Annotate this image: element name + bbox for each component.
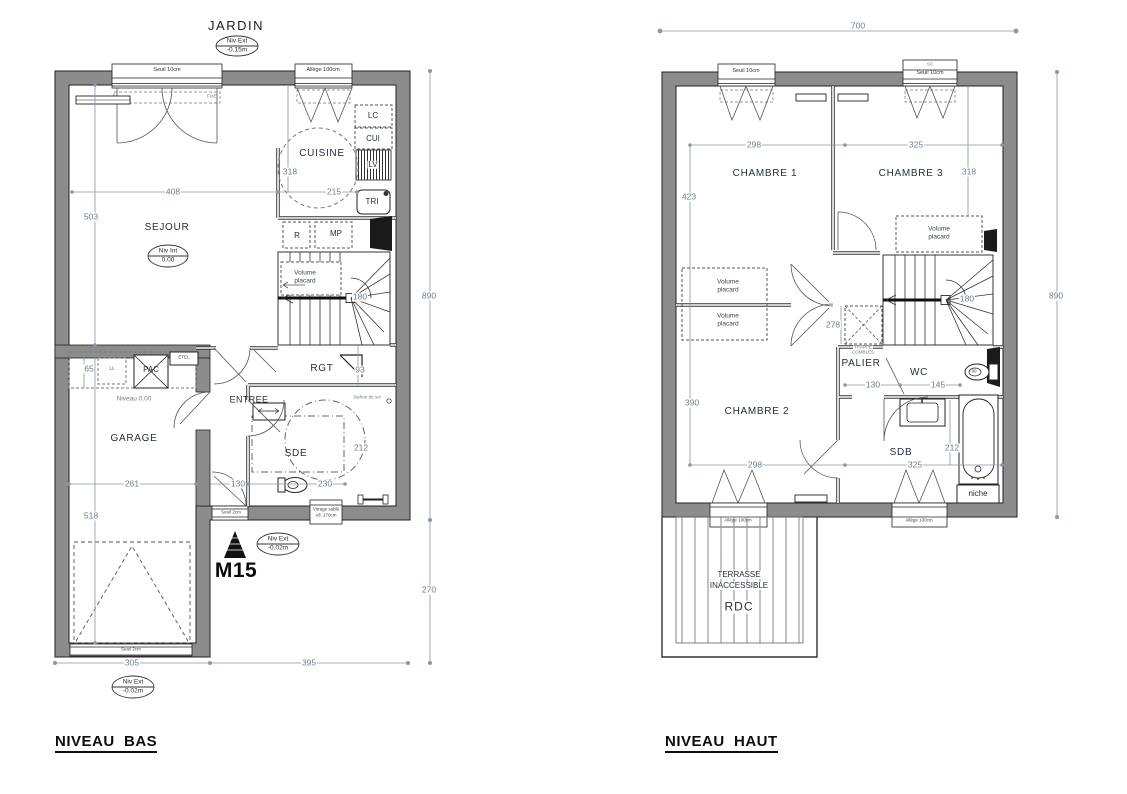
volume-placard-bas-l2: placard: [294, 279, 315, 286]
window-label-allege100: Allège 100cm: [306, 68, 339, 74]
jardin-label: JARDIN: [208, 19, 264, 33]
volume-placard-h3-l2: placard: [927, 235, 950, 242]
partitions-niveau-haut: [676, 86, 1003, 503]
level-ext-bot-label: Niv Ext: [123, 680, 144, 687]
room-rgt: RGT: [310, 364, 333, 375]
fixture-cui: CUI: [366, 135, 380, 143]
room-palier: PALIER: [841, 359, 880, 370]
level-int-value: 0.00: [162, 258, 175, 265]
fixture-r: R: [294, 232, 300, 240]
vitrage-label-l1: Vitrage sablé: [312, 508, 340, 513]
fixture-lc: LC: [368, 112, 378, 120]
volume-placard-h1-l2: placard: [716, 288, 739, 295]
dimensions-niveau-haut: [658, 29, 1059, 519]
plan-title-niveau-haut: NIVEAU HAUT: [665, 733, 778, 753]
window-label-sc: SC: [927, 63, 933, 68]
dim-180-haut: 180: [959, 295, 975, 304]
dim-318-haut: 318: [961, 168, 977, 177]
level-int-label: Niv Int: [159, 249, 177, 256]
dim-503: 503: [83, 213, 99, 222]
room-sdb: SDB: [890, 448, 913, 459]
vitrage-label-l2: All. 170cm: [314, 514, 337, 519]
dim-93: 93: [354, 366, 365, 375]
dim-423: 423: [681, 193, 697, 202]
dim-230: 230: [317, 480, 333, 489]
terrasse-label-l1: TERRASSE: [716, 571, 761, 579]
room-wc: WC: [910, 368, 928, 379]
seuil2-entree-label: Seuil 2cm: [221, 511, 241, 516]
siphon-label: Siphon de sol: [353, 396, 380, 401]
floorplan-linework: [0, 0, 1127, 794]
room-entree: ENTREE: [230, 395, 269, 404]
window-label-fixe: FIXE: [207, 95, 217, 100]
fixture-ll: LL: [109, 367, 114, 372]
room-garage: GARAGE: [111, 434, 158, 445]
room-sejour: SEJOUR: [145, 223, 190, 234]
dim-215: 215: [326, 188, 342, 197]
dim-278: 278: [825, 321, 841, 330]
dim-261: 261: [124, 480, 140, 489]
fixture-mp: MP: [330, 230, 342, 238]
dim-298a: 298: [746, 141, 762, 150]
dim-90: 90: [971, 370, 976, 375]
dim-395: 395: [301, 659, 317, 668]
level-ext-mid-label: Niv Ext: [268, 537, 289, 544]
volume-placard-h2-l1: Volume: [716, 314, 740, 321]
dim-318-bas: 318: [282, 168, 298, 177]
dim-180-bas: 180: [352, 293, 368, 302]
volume-placard-h1-l1: Volume: [716, 280, 740, 287]
dim-130-bas: 130: [230, 480, 246, 489]
dim-408: 408: [165, 188, 181, 197]
stairs-niveau-haut: [883, 255, 993, 345]
dim-890-bas: 890: [421, 292, 437, 301]
fixture-pac: PAC: [143, 366, 159, 374]
terrasse-label-l2: INACCESSIBLE: [709, 582, 769, 590]
window-label-seuil10-ch3: Seuil 10cm: [916, 71, 943, 77]
volume-placard-bas-l1: Volume: [294, 271, 316, 278]
dim-65: 65: [83, 365, 94, 374]
dim-212-bas: 212: [353, 444, 369, 453]
room-chambre2: CHAMBRE 2: [725, 407, 790, 418]
room-sde: SDE: [285, 449, 308, 460]
fixture-tri: TRI: [366, 198, 379, 206]
window-label-allege100-b: Allège 100cm: [905, 519, 932, 524]
trappe-combles-l2: COMBLES: [851, 351, 875, 356]
niveau-000-label: Niveau 0.00: [117, 397, 152, 404]
plan-title-niveau-bas: NIVEAU BAS: [55, 733, 157, 753]
window-label-seuil10: Seuil 10cm: [153, 68, 180, 74]
level-ext-top-value: -0.15m: [227, 48, 247, 55]
dim-890-haut: 890: [1048, 292, 1064, 301]
dim-518: 518: [83, 512, 99, 521]
dim-325b: 325: [907, 461, 923, 470]
room-chambre1: CHAMBRE 1: [733, 169, 798, 180]
m15-stairs-icon: [224, 531, 246, 558]
dim-130-haut: 130: [865, 381, 881, 390]
dim-145: 145: [930, 381, 946, 390]
niche-label: niche: [968, 490, 987, 498]
dim-298b: 298: [747, 461, 763, 470]
window-label-allege100-a: Allège 100cm: [724, 519, 751, 524]
floorplan-canvas: JARDIN Niv Ext -0.15m Seuil 10cm Allège …: [0, 0, 1127, 794]
lot-marker-m15: M15: [215, 560, 257, 582]
room-cuisine: CUISINE: [299, 149, 344, 160]
dim-212-haut: 212: [944, 444, 960, 453]
fixture-etel: ETEL: [178, 356, 189, 361]
dim-700: 700: [850, 22, 866, 31]
volume-placard-h2-l2: placard: [716, 322, 739, 329]
seuil2-garage-label: Seuil 2cm: [121, 648, 141, 653]
level-ext-bot-value: -0.02m: [123, 689, 143, 696]
terrasse-label-rdc: RDC: [723, 601, 756, 614]
window-label-seuil10-ch1: Seuil 10cm: [732, 69, 759, 75]
dim-305: 305: [124, 659, 140, 668]
dim-325a: 325: [908, 141, 924, 150]
room-chambre3: CHAMBRE 3: [879, 169, 944, 180]
level-ext-mid-value: -0.02m: [268, 546, 288, 553]
volume-placard-h3-l1: Volume: [927, 227, 951, 234]
level-ext-top-label: Niv Ext: [227, 39, 248, 46]
fixture-lv: LV: [367, 161, 378, 169]
dim-390: 390: [684, 399, 700, 408]
dim-270: 270: [421, 586, 437, 595]
